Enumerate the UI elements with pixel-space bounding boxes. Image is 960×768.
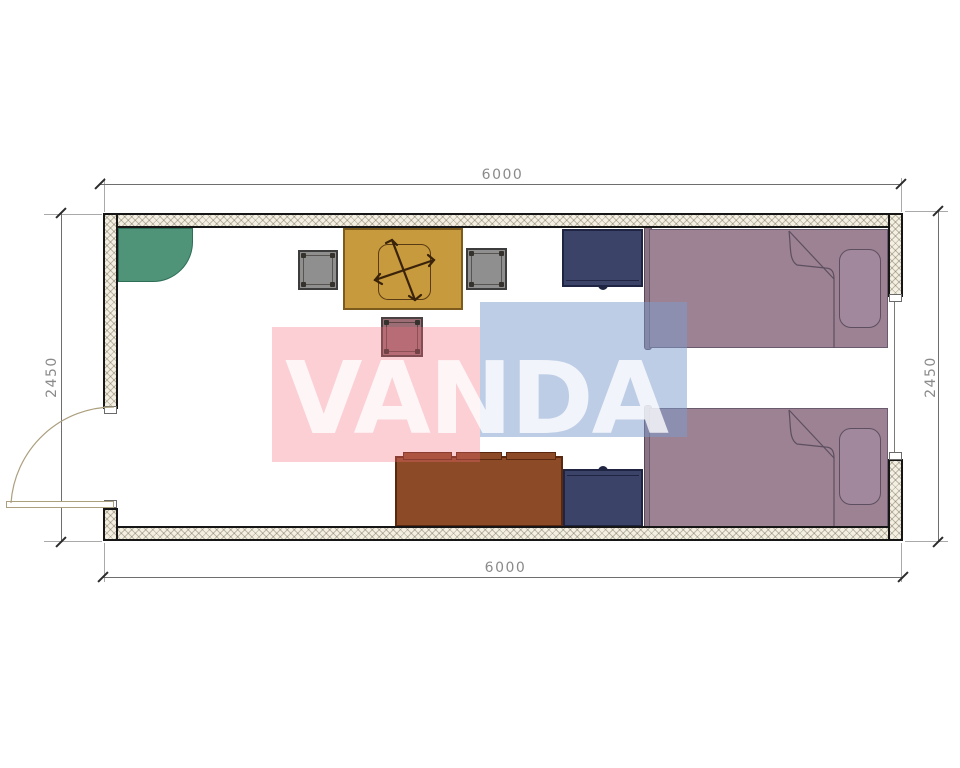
- dimension-label-top: 6000: [440, 167, 565, 183]
- wall-right-lower: [888, 459, 903, 541]
- dimension-label-bottom: 6000: [443, 560, 568, 576]
- stool-right: [466, 248, 507, 290]
- corner-shelf: [118, 228, 193, 282]
- dimension-line-bottom: [103, 577, 903, 578]
- wall-right-upper: [888, 213, 903, 297]
- drawer-line: [566, 280, 639, 281]
- watermark-text: VANDA: [256, 350, 696, 446]
- stool-cushion: [471, 253, 502, 285]
- stool-cushion: [303, 255, 333, 285]
- extension-line-right-top: [905, 211, 948, 212]
- nightstand-bottom: [563, 469, 643, 527]
- extension-line-left-bottom: [44, 541, 102, 542]
- extension-line-left-top: [44, 214, 102, 215]
- dimension-line-top: [100, 184, 901, 185]
- window-jamb-cap: [889, 294, 902, 302]
- knob-icon: [598, 285, 608, 290]
- extension-line-right-bottom: [905, 541, 948, 542]
- knob-icon: [598, 466, 608, 471]
- desk-chair-cross-icon: [345, 230, 465, 312]
- sofa: [395, 456, 563, 527]
- wall-bottom: [103, 526, 903, 541]
- dimension-label-right: 2450: [923, 347, 939, 407]
- nightstand-top: [562, 229, 643, 287]
- window-jamb-cap: [889, 452, 902, 460]
- stool-left: [298, 250, 338, 290]
- floor-plan-page: { "plan": { "title": "container-room-flo…: [0, 0, 960, 768]
- desk: [343, 228, 463, 310]
- drawer-line: [567, 475, 639, 476]
- wall-top: [103, 213, 903, 228]
- door-swing-arc: [0, 378, 130, 518]
- window: [894, 302, 895, 452]
